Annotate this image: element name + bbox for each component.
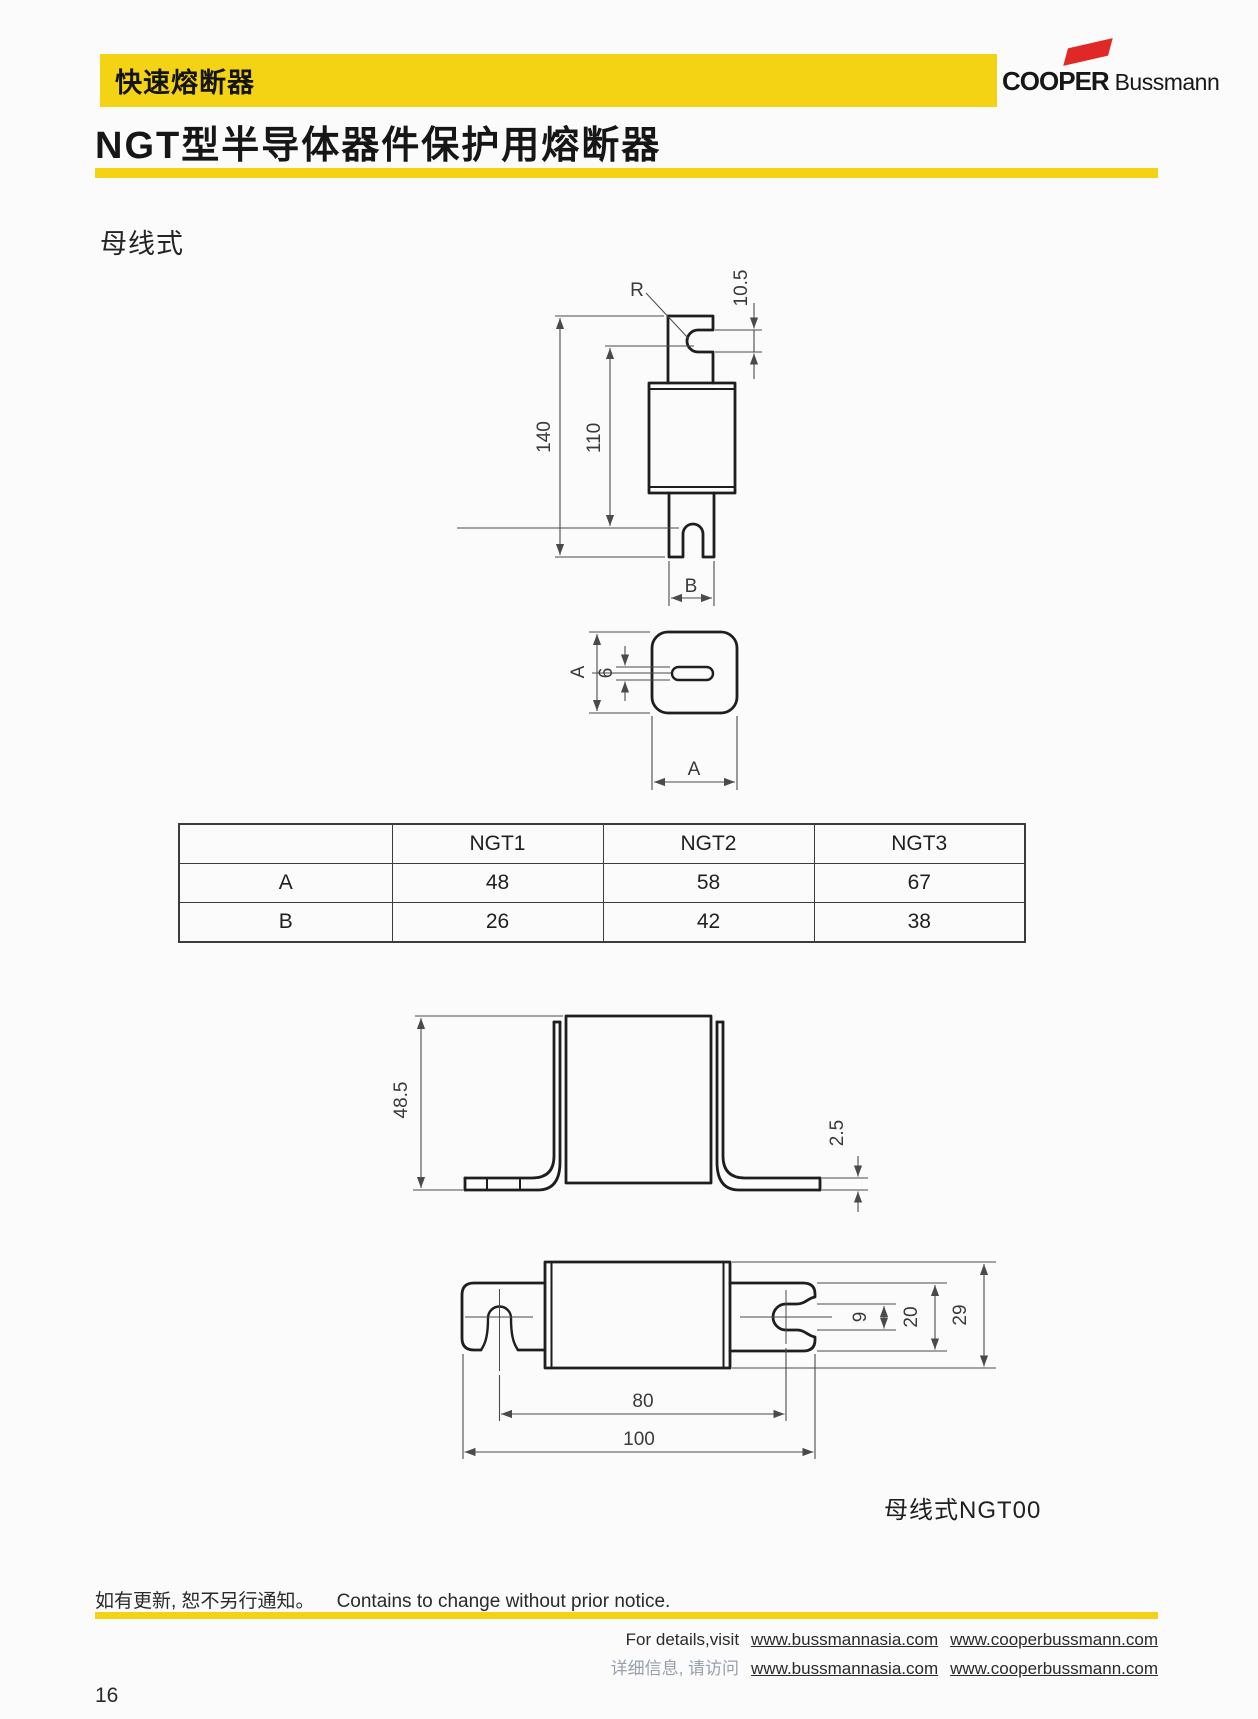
dim-a-bottom-label: A	[688, 759, 701, 780]
dim-b-label: B	[685, 576, 698, 597]
title-underline	[95, 168, 1158, 178]
row-a-ngt3: 67	[814, 864, 1025, 903]
bussmannasia-link[interactable]: www.bussmannasia.com	[751, 1630, 938, 1649]
drawing-caption-ngt00: 母线式NGT00	[884, 1490, 1041, 1525]
fuse-side-dimensions: R 10.5 140 110 B	[457, 270, 762, 606]
dimension-table: NGT1 NGT2 NGT3 A 48 58 67 B 26 42 38	[178, 823, 1026, 943]
logo-text: COOPER Bussmann	[1002, 66, 1219, 97]
cooperbussmann-link[interactable]: www.cooperbussmann.com	[950, 1630, 1158, 1649]
row-a-ngt2: 58	[603, 864, 814, 903]
fuse-side-view-drawing: R 10.5 140 110 B	[440, 255, 780, 615]
fuse-bracket-outline	[465, 1016, 820, 1190]
fuse-bottom-view-drawing: 9 20 29 80 100	[440, 1255, 1000, 1465]
dim-2-5-label: 2.5	[827, 1120, 848, 1146]
table-row-a: A 48 58 67	[179, 864, 1025, 903]
logo-brand-regular: Bussmann	[1109, 69, 1220, 95]
table-header-row: NGT1 NGT2 NGT3	[179, 824, 1025, 864]
dim-80-label: 80	[632, 1391, 653, 1412]
category-label: 快速熔断器	[100, 61, 255, 100]
fuse-bracket-view-drawing: 48.5 2.5	[390, 1005, 870, 1230]
page-number: 16	[95, 1684, 118, 1708]
update-notice: 如有更新, 恕不另行通知。Contains to change without …	[95, 1586, 1158, 1613]
row-a-ngt1: 48	[392, 864, 603, 903]
table-col-ngt3: NGT3	[814, 824, 1025, 864]
row-a-label: A	[179, 864, 392, 903]
dim-9-label: 9	[850, 1312, 871, 1323]
footer-yellow-rule	[95, 1612, 1158, 1619]
footer-details-en: For details,visitwww.bussmannasia.comwww…	[95, 1630, 1158, 1650]
section-label-busbar: 母线式	[100, 222, 184, 261]
datasheet-page: 快速熔断器 COOPER Bussmann NGT型半导体器件保护用熔断器 母线…	[0, 0, 1258, 1719]
dim-10-5-label: 10.5	[731, 270, 752, 307]
dim-a-left-label: A	[568, 665, 589, 678]
row-b-ngt2: 42	[603, 903, 814, 943]
dim-110-label: 110	[584, 423, 605, 453]
update-notice-en: Contains to change without prior notice.	[337, 1591, 671, 1612]
dim-29-label: 29	[950, 1304, 971, 1325]
dim-140-label: 140	[534, 421, 555, 453]
table-col-ngt1: NGT1	[392, 824, 603, 864]
category-header-bar: 快速熔断器	[100, 54, 997, 107]
update-notice-zh: 如有更新, 恕不另行通知。	[95, 1591, 315, 1612]
table-corner-cell	[179, 824, 392, 864]
footer-details-zh: 详细信息, 请访问www.bussmannasia.comwww.cooperb…	[95, 1654, 1158, 1679]
logo-brand-bold: COOPER	[1002, 66, 1109, 96]
table-col-ngt2: NGT2	[603, 824, 814, 864]
dimension-table-wrap: NGT1 NGT2 NGT3 A 48 58 67 B 26 42 38	[178, 823, 1024, 943]
dim-6-label: 6	[596, 668, 617, 679]
logo-flag-icon	[1063, 38, 1113, 66]
dim-100-label: 100	[623, 1429, 655, 1450]
cooper-bussmann-logo: COOPER Bussmann	[1002, 44, 1187, 106]
dim-radius-label: R	[630, 280, 644, 301]
page-title: NGT型半导体器件保护用熔断器	[95, 114, 1160, 169]
row-b-label: B	[179, 903, 392, 943]
details-en-prefix: For details,visit	[626, 1630, 739, 1649]
table-row-b: B 26 42 38	[179, 903, 1025, 943]
dim-48-5-label: 48.5	[391, 1082, 412, 1119]
fuse-bottom-outline	[462, 1262, 832, 1371]
cooperbussmann-link-zh[interactable]: www.cooperbussmann.com	[950, 1659, 1158, 1678]
dim-20-label: 20	[901, 1306, 922, 1327]
bussmannasia-link-zh[interactable]: www.bussmannasia.com	[751, 1659, 938, 1678]
details-zh-prefix: 详细信息, 请访问	[611, 1659, 739, 1678]
row-b-ngt1: 26	[392, 903, 603, 943]
fuse-top-view-drawing: A 6 A	[560, 620, 800, 790]
row-b-ngt3: 38	[814, 903, 1025, 943]
